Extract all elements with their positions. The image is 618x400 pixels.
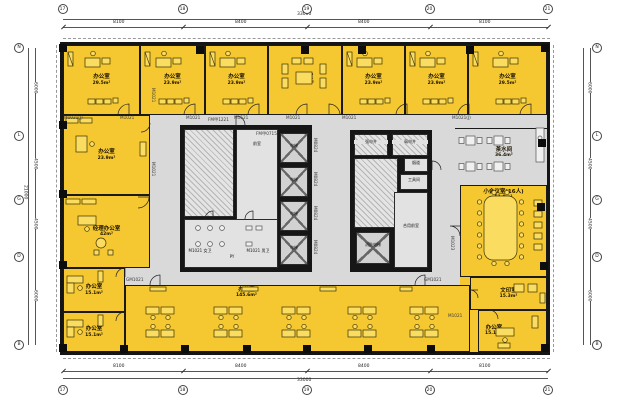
column-marker xyxy=(303,345,311,353)
grid-bubble: 20 xyxy=(425,385,435,395)
door-label: GM1021 xyxy=(424,278,442,282)
curtain-wall-line xyxy=(63,38,550,39)
grid-bubble: 17 xyxy=(58,385,68,395)
elevator-label: 电梯 xyxy=(282,212,306,216)
column-marker xyxy=(358,46,366,54)
room-label: 办公室23.9m² xyxy=(228,74,246,85)
dimension-line xyxy=(28,48,29,345)
room-label: 办公室15.1m² xyxy=(85,326,103,337)
strong-electric-shaft xyxy=(354,134,388,156)
column-marker xyxy=(537,203,545,211)
room-office: 办公室29.5m² xyxy=(468,45,547,115)
door-label: M1521 xyxy=(234,116,248,120)
elevator-label: 电梯 xyxy=(282,246,306,250)
dimension-label: 8400 xyxy=(234,365,247,370)
room-label: 办公室29.5m² xyxy=(499,74,517,85)
grid-bubble: N xyxy=(592,43,602,53)
room-office: 办公室23.9m² xyxy=(140,45,205,115)
room-office: 办公室23.9m² xyxy=(342,45,405,115)
column-marker xyxy=(59,190,67,198)
room-print: 文印室15.3m² xyxy=(470,277,547,310)
grid-bubble: D xyxy=(14,252,24,262)
dimension-label: 6000 xyxy=(585,290,592,301)
shaft-label: PY xyxy=(226,255,238,259)
tool-room-label: 工具间 xyxy=(400,178,428,182)
dimension-label: 4500 xyxy=(31,218,38,229)
door-label: FM甲1221 xyxy=(208,118,229,122)
dimension-label: 33000 xyxy=(296,13,312,18)
door-label: M1021 xyxy=(151,88,155,102)
door-label: M1021 xyxy=(286,116,300,120)
dimension-label: 6000 xyxy=(585,82,592,93)
grid-bubble: B xyxy=(592,340,602,350)
dimension-label: 4500 xyxy=(585,158,592,169)
curtain-wall-line xyxy=(56,45,57,352)
room-label: 会客室28.4m² xyxy=(296,74,314,85)
door-label: M0824 xyxy=(313,206,317,220)
grid-bubble: L xyxy=(14,131,24,141)
door-label: FM甲0715 xyxy=(256,132,277,136)
curtain-wall-line xyxy=(553,45,554,352)
column-marker xyxy=(243,345,251,353)
column-marker xyxy=(301,46,309,54)
column-marker xyxy=(59,121,67,129)
dimension-label: 8400 xyxy=(357,21,370,26)
column-marker xyxy=(59,44,67,52)
shared-vestibule-label: 合用前室 xyxy=(394,224,428,228)
room-office: 办公室15.1m² xyxy=(63,312,125,352)
grid-bubble: G xyxy=(592,195,602,205)
column-marker xyxy=(196,46,204,54)
room-reception: 会客室28.4m² xyxy=(268,45,342,115)
vestibule-label: 前室 xyxy=(242,142,272,146)
dimension-line xyxy=(583,48,584,345)
room-label: 办公室145.6m² xyxy=(236,287,257,298)
column-marker xyxy=(541,44,549,52)
stair-icon xyxy=(184,129,234,217)
door-label: GM1021 xyxy=(126,278,144,282)
column-marker xyxy=(59,344,67,352)
dimension-label: 6000 xyxy=(31,290,38,301)
door-label: M1021 xyxy=(448,314,462,318)
room-label: 经理办公室42m² xyxy=(93,226,121,237)
dimension-label: 33000 xyxy=(296,379,312,384)
door-label: M1021(J) xyxy=(64,116,83,120)
elevator-label: 电梯 xyxy=(282,144,306,148)
wc-men-label: M1021 男卫 xyxy=(243,249,273,253)
fire-elevator-shaft-icon xyxy=(356,232,390,264)
room-small-meeting: 小会议室(16人)51.9m² xyxy=(460,185,547,277)
door-label: M1021 xyxy=(186,116,200,120)
weak-electric-shaft xyxy=(392,134,428,156)
grid-bubble: D xyxy=(592,252,602,262)
column-marker xyxy=(538,139,546,147)
dimension-label: 8100 xyxy=(478,365,491,370)
room-label: 茶水间36.4m² xyxy=(495,147,513,158)
stair-icon xyxy=(354,158,398,228)
grid-bubble: 18 xyxy=(178,4,188,14)
smoke-duct-label: 烟道 xyxy=(404,161,428,165)
dimension-label: 8400 xyxy=(357,365,370,370)
door-label: M1023 xyxy=(450,236,454,250)
column-marker xyxy=(59,261,67,269)
weak-electric-label: 弱电井 xyxy=(392,140,428,144)
door-label: M1021 xyxy=(120,116,134,120)
room-label: 办公室15.1m² xyxy=(85,284,103,295)
grid-bubble: 17 xyxy=(58,4,68,14)
dimension-label: 8100 xyxy=(112,21,125,26)
door-label: M0824 xyxy=(313,172,317,186)
column-marker xyxy=(120,345,128,353)
room-label: 办公室15.1m² xyxy=(485,325,503,336)
curtain-wall-line xyxy=(63,358,550,359)
grid-bubble: B xyxy=(14,340,24,350)
room-label: 办公室29.5m² xyxy=(93,74,111,85)
room-label: 文印室15.3m² xyxy=(500,288,518,299)
grid-bubble: 19 xyxy=(302,4,312,14)
grid-bubble: 19 xyxy=(302,385,312,395)
dimension-label: 8400 xyxy=(234,21,247,26)
room-office: 办公室23.9m² xyxy=(63,115,150,195)
column-marker xyxy=(427,345,435,353)
room-label: 办公室23.9m² xyxy=(428,74,446,85)
strong-electric-label: 强电井 xyxy=(354,140,388,144)
room-office: 办公室15.1m² xyxy=(478,310,547,352)
room-office: 办公室29.5m² xyxy=(63,45,140,115)
elevator-label: 电梯 xyxy=(282,178,306,182)
grid-bubble: 21 xyxy=(543,4,553,14)
dimension-label: 4500 xyxy=(31,158,38,169)
column-marker xyxy=(541,344,549,352)
dimension-label: 6000 xyxy=(31,82,38,93)
column-marker xyxy=(364,345,372,353)
door-label: M0824 xyxy=(313,240,317,254)
dimension-label: 8100 xyxy=(478,21,491,26)
grid-bubble: L xyxy=(592,131,602,141)
wc-women-label: M1021 女卫 xyxy=(185,249,215,253)
fire-elevator-label: 消防电梯 xyxy=(356,243,390,247)
room-label: 办公室23.9m² xyxy=(365,74,383,85)
room-open-office: 办公室145.6m² xyxy=(125,285,470,352)
core-toilets xyxy=(184,219,278,268)
room-office: 办公室23.9m² xyxy=(405,45,468,115)
grid-bubble: G xyxy=(14,195,24,205)
column-marker xyxy=(466,46,474,54)
shared-vestibule xyxy=(394,192,428,268)
door-label: M1021 xyxy=(342,116,356,120)
room-manager-office: 经理办公室42m² xyxy=(63,195,150,268)
dimension-label: 8100 xyxy=(112,365,125,370)
grid-bubble: 20 xyxy=(425,4,435,14)
column-marker xyxy=(540,262,548,270)
column-marker xyxy=(181,345,189,353)
room-office: 办公室23.9m² xyxy=(205,45,268,115)
dimension-label: 4500 xyxy=(585,218,592,229)
door-label: M0824 xyxy=(313,138,317,152)
room-label: 办公室23.9m² xyxy=(164,74,182,85)
room-label: 办公室23.9m² xyxy=(98,149,116,160)
grid-bubble: 21 xyxy=(543,385,553,395)
dimension-line xyxy=(63,19,548,20)
door-label: M1021 xyxy=(151,162,155,176)
grid-bubble: N xyxy=(14,43,24,53)
floor-plan-sheet: 17 18 19 20 21 33000 8100 8400 8400 8100… xyxy=(0,0,618,400)
grid-bubble: 18 xyxy=(178,385,188,395)
door-label: M1021(J) xyxy=(452,116,471,120)
room-pantry: 茶水间36.4m² xyxy=(455,128,547,190)
room-office: 办公室15.1m² xyxy=(63,268,125,312)
room-label: 小会议室(16人)51.9m² xyxy=(461,189,546,200)
